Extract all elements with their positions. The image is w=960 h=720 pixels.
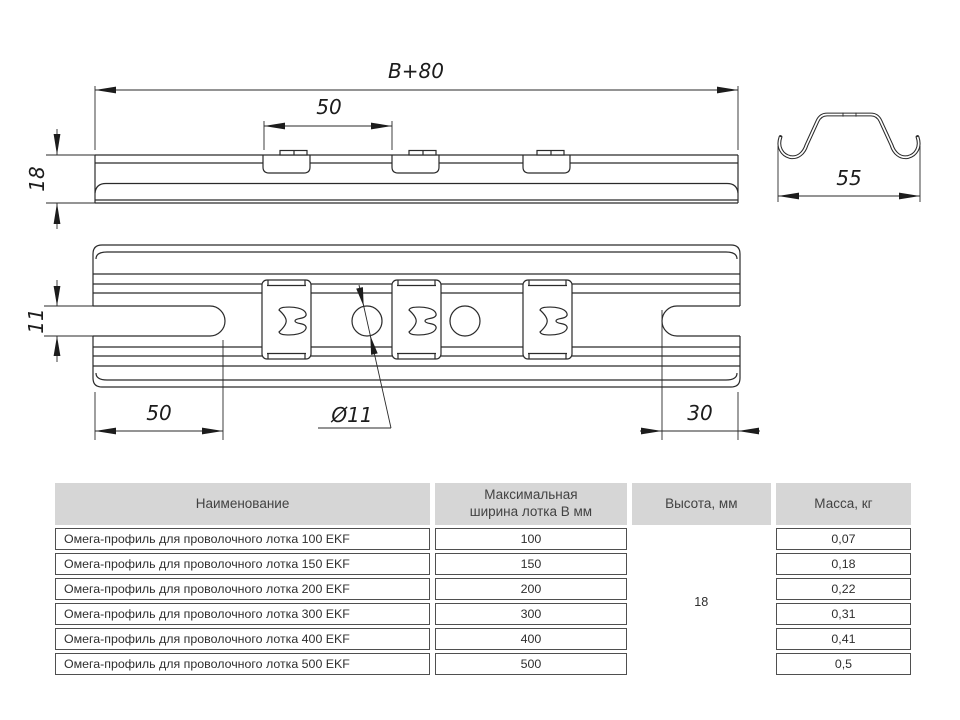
cell-width: 150 [435, 553, 627, 575]
cell-mass: 0,18 [776, 553, 911, 575]
dim-label-d11: Ø11 [330, 403, 372, 427]
cell-width: 200 [435, 578, 627, 600]
header-height: Высота, мм [632, 483, 771, 525]
hole-d11 [450, 306, 480, 336]
cell-name: Омега-профиль для проволочного лотка 100… [55, 528, 430, 550]
table-row: Омега-профиль для проволочного лотка 200… [55, 578, 911, 600]
table-header-row: Наименование Максимальная ширина лотка В… [55, 483, 911, 525]
cell-mass: 0,5 [776, 653, 911, 675]
dim-label-30: 30 [687, 401, 712, 425]
technical-drawing: В+80 50 18 55 11 50 Ø11 30 [0, 0, 960, 474]
spec-table-wrap: Наименование Максимальная ширина лотка В… [50, 480, 916, 678]
table-row: Омега-профиль для проволочного лотка 100… [55, 528, 911, 550]
cell-mass: 0,07 [776, 528, 911, 550]
cell-mass: 0,31 [776, 603, 911, 625]
cell-mass: 0,41 [776, 628, 911, 650]
cell-height-merged: 18 [632, 528, 771, 675]
cell-width: 300 [435, 603, 627, 625]
table-row: Омега-профиль для проволочного лотка 150… [55, 553, 911, 575]
header-max-width-line1: Максимальная [436, 487, 626, 504]
dim-label-50-bottom: 50 [146, 401, 171, 425]
spec-table: Наименование Максимальная ширина лотка В… [50, 480, 916, 678]
clip-tab [523, 280, 572, 359]
datasheet-page: В+80 50 18 55 11 50 Ø11 30 Наименование … [0, 0, 960, 720]
cell-width: 400 [435, 628, 627, 650]
cell-mass: 0,22 [776, 578, 911, 600]
clip-tab [392, 280, 441, 359]
dim-label-18: 18 [25, 166, 49, 191]
cell-name: Омега-профиль для проволочного лотка 400… [55, 628, 430, 650]
cell-name: Омега-профиль для проволочного лотка 300… [55, 603, 430, 625]
cell-width: 100 [435, 528, 627, 550]
clip-tab [262, 280, 311, 359]
dim-label-50-top: 50 [316, 95, 341, 119]
top-view-drawing [93, 245, 740, 387]
table-row: Омега-профиль для проволочного лотка 300… [55, 603, 911, 625]
cell-name: Омега-профиль для проволочного лотка 200… [55, 578, 430, 600]
cell-name: Омега-профиль для проволочного лотка 500… [55, 653, 430, 675]
cell-name: Омега-профиль для проволочного лотка 150… [55, 553, 430, 575]
header-name: Наименование [55, 483, 430, 525]
dim-label-b80: В+80 [388, 59, 444, 83]
header-mass: Масса, кг [776, 483, 911, 525]
cell-width: 500 [435, 653, 627, 675]
cross-section-drawing [779, 113, 918, 158]
dim-label-55: 55 [836, 166, 861, 190]
side-view-drawing [95, 151, 738, 204]
table-row: Омега-профиль для проволочного лотка 400… [55, 628, 911, 650]
header-max-width: Максимальная ширина лотка В мм [435, 483, 627, 525]
header-max-width-line2: ширина лотка В мм [436, 504, 626, 521]
table-row: Омега-профиль для проволочного лотка 500… [55, 653, 911, 675]
dim-label-11: 11 [24, 308, 48, 333]
